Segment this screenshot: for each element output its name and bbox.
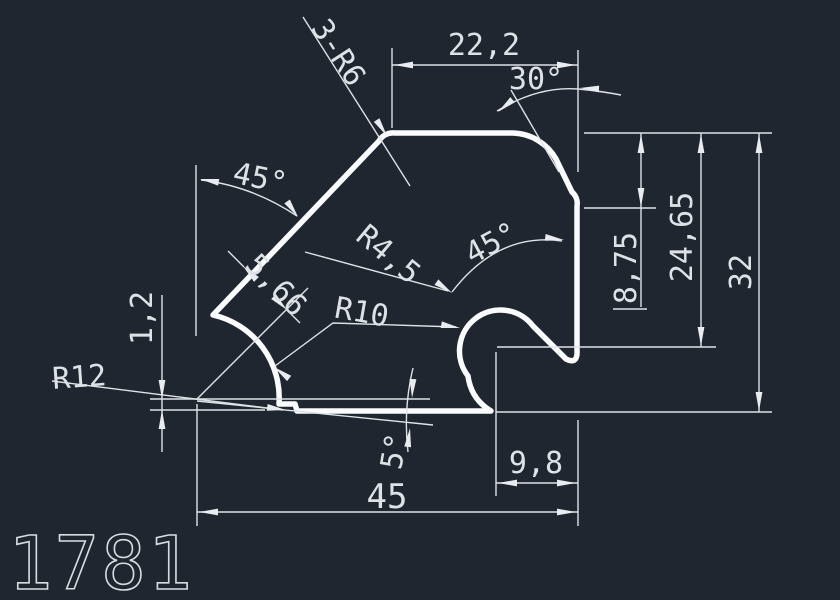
dim-text-offset: 5,66: [238, 247, 313, 323]
arrowhead-step-upper: [159, 380, 166, 399]
dim-text-top-angle: 30°: [509, 62, 563, 97]
dim-text-fillet-radius: R10: [332, 291, 391, 335]
dim-text-slot-radius: R4,5: [349, 218, 427, 291]
dim-text-slot-angle: 45°: [459, 215, 523, 271]
dim-text-corner-radius: 3-R6: [304, 13, 373, 93]
arrowhead-2465-top: [698, 134, 705, 153]
dim-text-left-radius: R12: [51, 358, 107, 397]
dim-text-step-height: 1,2: [125, 291, 160, 345]
cad-drawing-canvas: 22,2 30° 3-R6 45° 5,66 R4,5 45° R10 R12 …: [0, 0, 840, 600]
dim-line-offset-a: [228, 251, 244, 267]
dim-text-left-angle: 45°: [230, 156, 290, 202]
arrowhead-fillet-radius-end: [441, 321, 461, 331]
dim-text-right-875: 8,75: [609, 232, 644, 304]
dim-text-right-32: 32: [724, 254, 759, 290]
part-number-label: 1781: [8, 521, 194, 600]
arrowhead-step-lower: [159, 410, 166, 429]
dim-text-top-width: 22,2: [448, 28, 520, 63]
arrowhead-top-angle-right: [580, 85, 599, 93]
arrowhead-slot-angle-right: [545, 234, 565, 243]
dim-text-right-2465: 24,65: [665, 192, 700, 282]
dim-text-total-width: 45: [367, 477, 408, 517]
dim-text-bottom-angle: 5°: [374, 431, 415, 473]
arrowhead-top-angle-left: [496, 97, 515, 114]
arrowhead-top-width-left: [394, 62, 413, 69]
arrowhead-875-bottom: [638, 188, 645, 207]
dim-text-slot-offset: 9,8: [509, 446, 563, 481]
arrowhead-45-left: [199, 509, 218, 516]
arrowhead-2465-bottom: [698, 327, 705, 346]
cad-viewport[interactable]: 22,2 30° 3-R6 45° 5,66 R4,5 45° R10 R12 …: [0, 0, 840, 600]
arrowhead-32-bottom: [756, 392, 763, 411]
arrowhead-875-top: [638, 134, 645, 153]
arrowhead-45-right: [557, 509, 576, 516]
arrowhead-32-top: [756, 134, 763, 153]
